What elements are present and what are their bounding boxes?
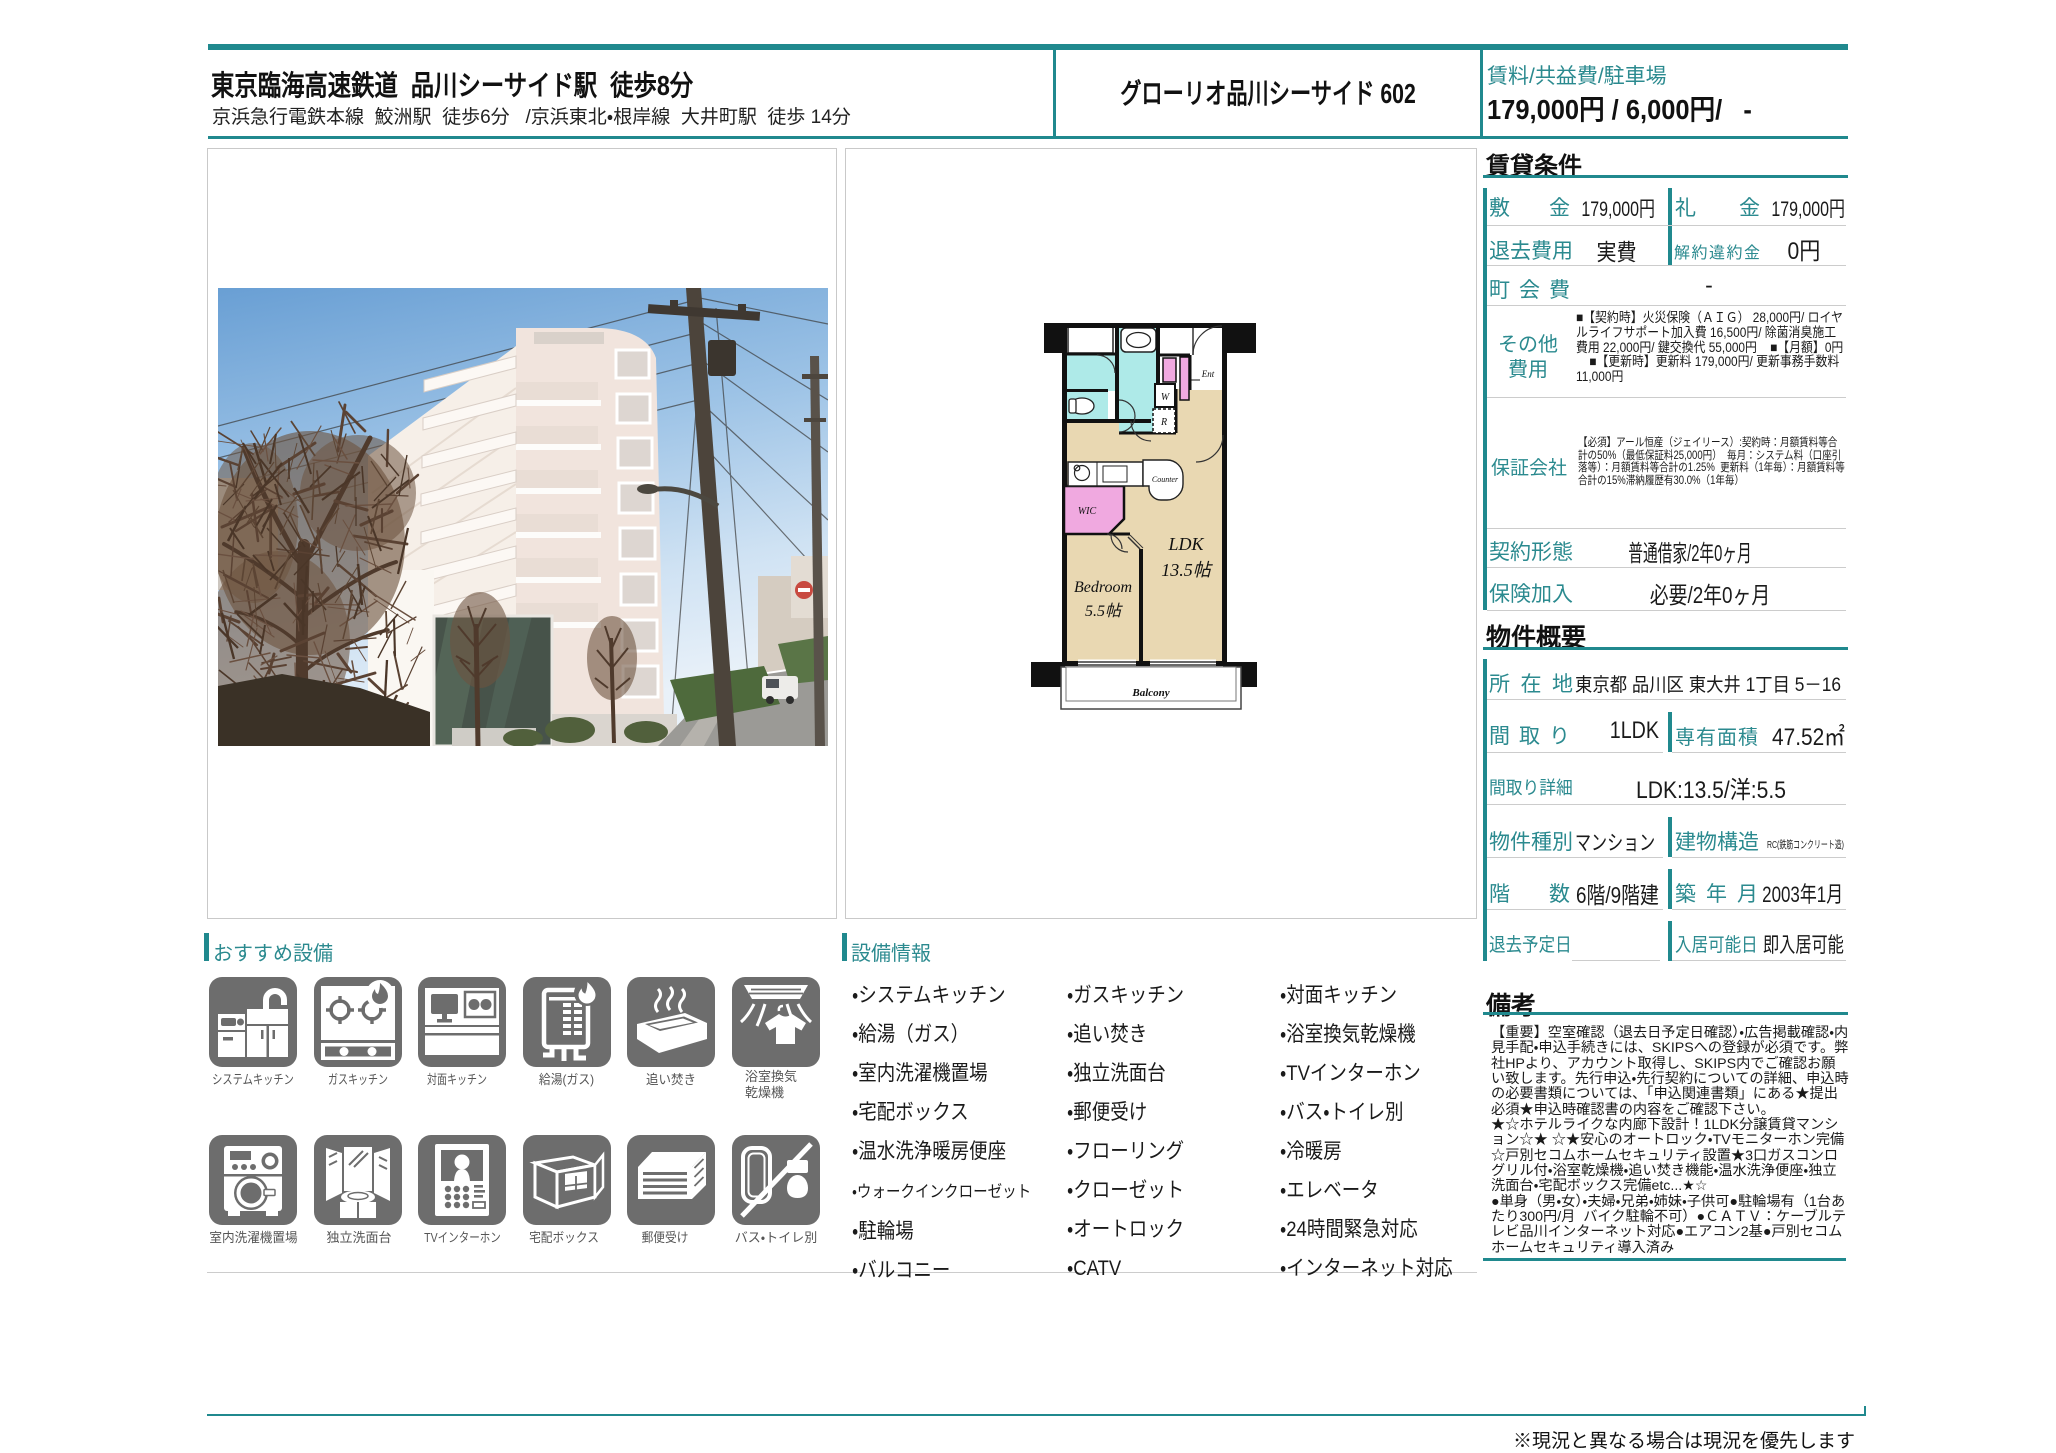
svg-text:5.5帖: 5.5帖	[1085, 602, 1123, 620]
svg-text:Balcony: Balcony	[1131, 687, 1169, 699]
svg-text:13.5帖: 13.5帖	[1161, 560, 1214, 580]
svg-text:Ent: Ent	[1201, 369, 1215, 379]
svg-text:Counter: Counter	[1152, 475, 1179, 484]
svg-text:LDK: LDK	[1167, 534, 1204, 554]
svg-text:Bedroom: Bedroom	[1074, 579, 1132, 596]
svg-text:R: R	[1160, 417, 1167, 428]
svg-text:WIC: WIC	[1078, 506, 1097, 517]
